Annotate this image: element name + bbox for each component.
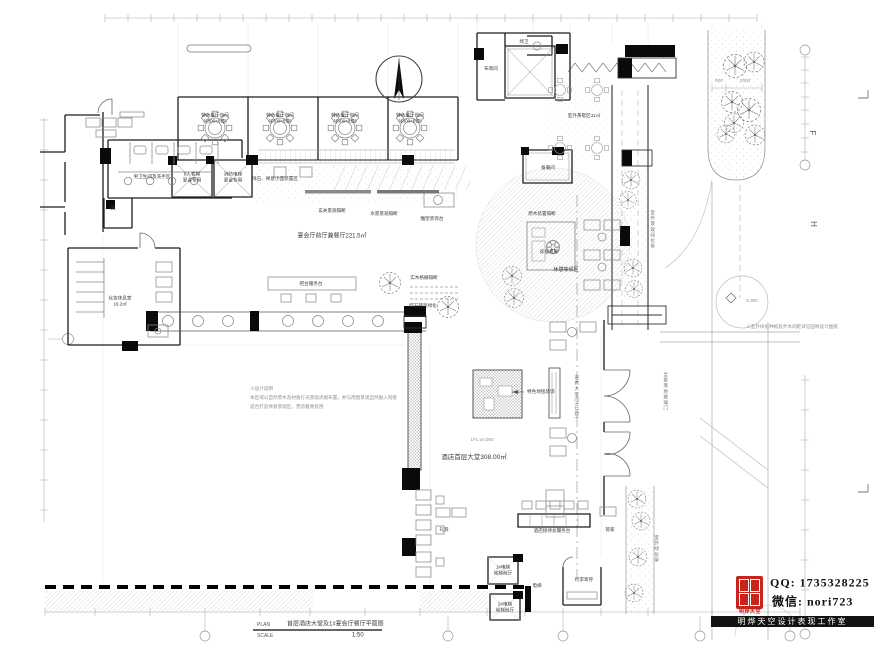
label-sculpture: 雕塑装饰台 <box>421 216 444 222</box>
label-lift-2: 消防电梯 宴会专用 <box>224 171 242 182</box>
dim-strip-width: 900 <box>715 78 723 84</box>
seal-cell <box>739 579 749 592</box>
scale-value: 1:50 <box>352 632 364 640</box>
floor-plan-drawing <box>0 0 888 646</box>
label-center-view: 穿插景观 <box>540 249 558 255</box>
label-air-room: 风 <box>110 206 115 212</box>
dining-room-size: (1300×8位) <box>396 118 424 124</box>
label-lounge: 休憩等候区 <box>553 267 578 273</box>
floor-plan-sheet: 特色餐厅包间 (1300×8位) 特色餐厅包间 (1300×8位) 特色餐厅包间… <box>0 0 888 646</box>
stone-wall-band <box>408 330 421 470</box>
label-gravel: 碎石铺装绿化 <box>409 303 437 309</box>
lobby-name: 2#电梯 <box>496 601 514 607</box>
grid-letter-f: F <box>807 131 817 136</box>
dining-room-name: 特色餐厅包间 <box>201 112 229 118</box>
dining-room-name: 特色餐厅包间 <box>396 112 424 118</box>
label-lift-lobby-1: 1#电梯 候梯前厅 <box>494 564 512 575</box>
dining-room-name: 特色餐厅包间 <box>331 112 359 118</box>
label-water-screen: 水景景观隔断 <box>370 211 398 217</box>
label-lift-lobby-2: 2#电梯 候梯前厅 <box>496 601 514 612</box>
label-reception: 酒店接待总服务台 <box>534 528 571 534</box>
label-lift-1: 8人客梯 宴会专用 <box>183 171 201 182</box>
dining-room-size: (1300×8位) <box>331 118 359 124</box>
label-center-screen: 原木装置隔断 <box>528 211 556 217</box>
lift-name: 消防电梯 <box>224 171 242 177</box>
dim-road-level: 6.300 <box>746 298 758 304</box>
label-concierge: 礼宾 <box>439 527 448 533</box>
label-hc-wc: 残卫 <box>519 39 528 45</box>
dining-room-name: 特色餐厅包间 <box>266 112 294 118</box>
watermark-wechat: 微信: nori723 <box>772 595 853 610</box>
corner-brackets <box>858 90 868 492</box>
feature-carpet <box>473 370 522 418</box>
lobby-sub: 候梯前厅 <box>494 570 512 576</box>
awning-zigzag <box>568 63 666 72</box>
label-entry-door-vertical: 迎宾大堂门(已建) <box>574 375 580 419</box>
label-banquet-foyer: 宴会厅前厅兼餐厅221.5㎡ <box>297 233 366 241</box>
label-dining-room-1: 特色餐厅包间 (1300×8位) <box>201 112 229 123</box>
plan-label: PLAN <box>257 622 270 628</box>
drawing-title: 首层酒店大堂及1#宴会厅餐厅平面图 <box>287 621 384 629</box>
label-pantry: 备餐间 <box>541 165 555 171</box>
scale-label: SCALE <box>257 633 273 639</box>
dining-room-size: (1300×8位) <box>201 118 229 124</box>
note-line-1: 本区域以自然原木及材质灯光景观点缀布置，并与周围景观自然融入衔接 <box>250 395 397 401</box>
note-line-2: 适合打造禅意景观区，营造雅致氛围 <box>250 404 324 410</box>
lift-use: 宴会专用 <box>183 177 201 183</box>
seal-cell <box>739 593 749 606</box>
wall-inner-lines <box>172 46 578 620</box>
lift-name: 8人客梯 <box>183 171 201 177</box>
grid-letter-h: H <box>808 221 818 227</box>
watermark-qq: QQ: 1735328225 <box>770 576 870 591</box>
seal-caption: 明烨天空 <box>739 609 761 615</box>
room-area: 16.2㎡ <box>109 301 132 307</box>
label-elevator: 电梯 <box>532 583 541 589</box>
label-greenbelt-vertical: 室外景观绿化带 <box>650 210 656 249</box>
note-title: ※设计说明 <box>250 386 273 392</box>
label-dining-room-3: 特色餐厅包间 (1300×8位) <box>331 112 359 123</box>
label-luggage: 行李寄存 <box>575 577 593 583</box>
studio-seal-icon <box>736 576 763 609</box>
label-carpet: 特色地毯装饰 <box>527 389 555 395</box>
label-linen: 布草间 <box>484 66 498 72</box>
label-makeup-room: 化妆休息室 16.2㎡ <box>109 295 132 306</box>
label-level: 1FL ±0.000 <box>470 437 493 443</box>
north-arrow <box>376 56 422 102</box>
studio-bar: 明烨天空设计表现工作室 <box>711 616 874 627</box>
lobby-name: 1#电梯 <box>494 564 512 570</box>
label-butler: 管家 <box>605 527 614 533</box>
grid-bubbles <box>63 45 811 641</box>
label-glass-door-vertical: 全景落地玻璃门 <box>663 372 669 411</box>
dining-room-size: (1300×8位) <box>266 118 294 124</box>
seal-cell <box>750 593 760 606</box>
dim-strip-length: 2000 <box>740 78 750 84</box>
label-mens-wc: 男卫生间及洗手区 <box>134 174 171 180</box>
label-wood-grille: 实木格栅隔断 <box>410 275 438 281</box>
label-dining-room-4: 特色餐厅包间 (1300×8位) <box>396 112 424 123</box>
label-terrace-note: 绿石、禅意小品装置区 <box>252 176 298 182</box>
label-bar-counter: 吧台服务台 <box>300 281 323 287</box>
lobby-sub: 候梯前厅 <box>496 607 514 613</box>
label-entry-screen: 玄关景观隔断 <box>318 208 346 214</box>
lift-use: 宴会专用 <box>224 177 242 183</box>
label-lobby: 酒店首层大堂308.00㎡ <box>441 454 506 462</box>
room-name: 化妆休息室 <box>109 295 132 301</box>
label-dining-room-2: 特色餐厅包间 (1300×8位) <box>266 112 294 123</box>
seal-cell <box>750 579 760 592</box>
label-outdoor-area: 室外茶歇区31㎡ <box>568 113 601 119</box>
note-road: ※室外绿化种植及乔木间距详见园林设计图纸 <box>746 324 838 330</box>
label-greenbelt2-vertical: 室外绿化带 <box>654 535 660 563</box>
